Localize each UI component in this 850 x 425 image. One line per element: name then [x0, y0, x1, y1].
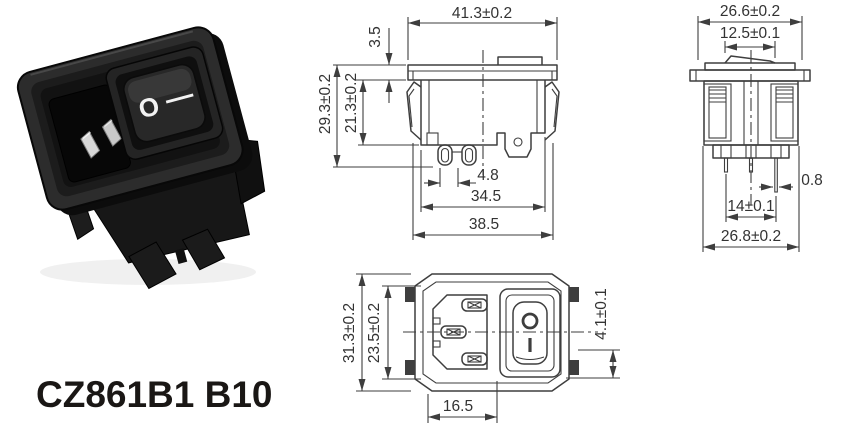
face-pin-slot	[462, 299, 487, 311]
face-rocker-switch	[500, 289, 560, 377]
svg-text:41.3±0.2: 41.3±0.2	[452, 5, 512, 22]
svg-text:0.8: 0.8	[801, 172, 823, 189]
svg-text:21.3±0.2: 21.3±0.2	[343, 73, 360, 133]
face-mounting-ear	[569, 360, 579, 375]
front-outline	[407, 50, 559, 175]
model-number: CZ861B1 B10	[36, 374, 336, 416]
svg-text:23.5±0.2: 23.5±0.2	[366, 303, 383, 363]
dim-front-body-height: 21.3±0.2	[343, 73, 419, 145]
front-dimensions: 41.3±0.2 3.5 29.3±0.2 21.3±0.2	[317, 5, 557, 240]
front-rocker-tab	[498, 57, 542, 65]
dim-face-inlet-width: 16.5	[428, 381, 497, 423]
front-tab-hole	[514, 138, 522, 146]
svg-text:38.5: 38.5	[469, 216, 499, 233]
side-rocker-hump	[725, 56, 775, 63]
face-mounting-ear	[569, 287, 579, 302]
dim-side-rocker-width: 12.5±0.1	[720, 25, 780, 58]
svg-text:26.8±0.2: 26.8±0.2	[721, 228, 781, 245]
side-outline	[690, 50, 810, 205]
svg-text:34.5: 34.5	[471, 188, 501, 205]
svg-text:12.5±0.1: 12.5±0.1	[720, 25, 780, 42]
datasheet-page: O —	[0, 0, 850, 425]
svg-text:31.3±0.2: 31.3±0.2	[341, 303, 358, 363]
svg-text:3.5: 3.5	[367, 26, 384, 48]
svg-text:16.5: 16.5	[443, 398, 473, 415]
face-mounting-ear	[405, 287, 415, 302]
front-solder-pins	[438, 145, 476, 165]
side-dimensions: 26.6±0.2 12.5±0.1 0.8 14±0.1	[698, 3, 823, 252]
power-off-symbol	[523, 314, 537, 328]
svg-text:29.3±0.2: 29.3±0.2	[317, 74, 334, 134]
side-clip-right	[771, 84, 798, 141]
dim-side-pin-thickness: 0.8	[759, 172, 823, 189]
svg-text:26.6±0.2: 26.6±0.2	[720, 3, 780, 20]
face-mounting-ear	[405, 360, 415, 375]
drawing-face-view: 31.3±0.2 23.5±0.2 4.1±0.1 16.5	[330, 258, 640, 425]
dim-front-pin-pitch: 4.8	[424, 167, 499, 187]
side-clip-left	[704, 84, 731, 141]
svg-text:4.8: 4.8	[477, 167, 499, 184]
drawing-front-view: 41.3±0.2 3.5 29.3±0.2 21.3±0.2	[290, 0, 575, 250]
svg-text:14±0.1: 14±0.1	[727, 198, 774, 215]
face-pin-slot	[462, 353, 487, 365]
product-photo: O —	[8, 10, 283, 300]
face-outline	[403, 274, 598, 391]
drawing-side-view: 26.6±0.2 12.5±0.1 0.8 14±0.1	[640, 0, 840, 260]
svg-text:4.1±0.1: 4.1±0.1	[593, 288, 610, 340]
